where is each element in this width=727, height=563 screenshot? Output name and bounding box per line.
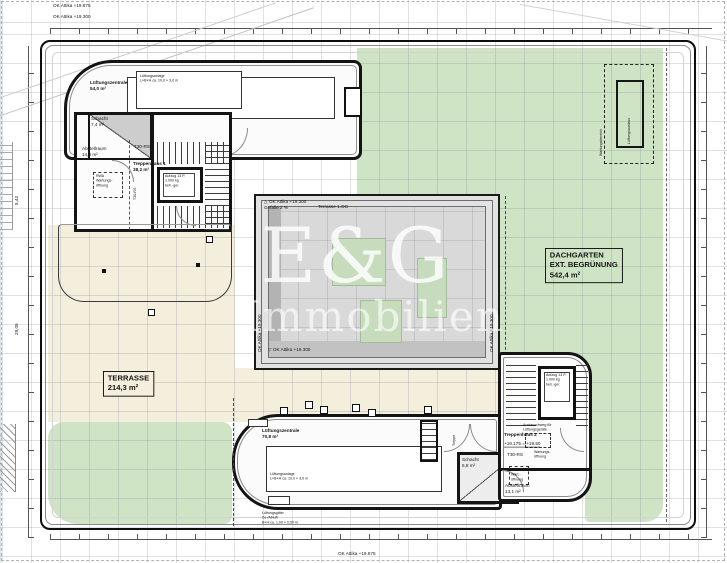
roof-drain-4 (352, 404, 360, 412)
stair1-abstell-label: Abstellraum 14,8 m² (82, 146, 107, 158)
terrasse-label: TERRASSE 214,3 m² (103, 371, 154, 396)
dimension-line-right (701, 46, 707, 538)
atrium-right-dashline (505, 196, 506, 370)
vent-ne-inner-label: Lüftungsauslass (627, 118, 632, 144)
dim-left-2: 29,05 (14, 323, 20, 335)
watermark-sub: Immobilien (244, 296, 468, 338)
terrace-dot-1 (102, 269, 106, 273)
stair2-level-label: +19.175 = +19.50 (504, 441, 541, 448)
floorplan-sheet: OK Attika +19.675 OK Attika +19.300 OK A… (0, 0, 727, 563)
south-wing-room-label: Lüftungszentrale 70,8 m² (262, 428, 299, 440)
terrace-dot-2 (196, 263, 200, 267)
stair2-flight-right (576, 364, 588, 426)
axis-dashline-west (233, 398, 234, 526)
stair2-flight-left (506, 364, 536, 426)
dimension-line-bottom (50, 534, 712, 540)
level-label-top-a: OK Attika +19.675 (53, 3, 91, 9)
terrace-square-2 (148, 309, 155, 316)
level-label-bottom: OK Attika +19.675 (338, 551, 376, 557)
stair1-service-label: RWA Wartungs- öffnung (96, 174, 112, 188)
dimension-line-left (28, 46, 34, 538)
shaft2-label: Schacht 6,8 m² (462, 457, 479, 469)
south-wing-equipment (266, 446, 442, 492)
north-wing-unit-label: Lüftungsanlage L×B×H ca. 10,0 × 3,0 m (140, 74, 178, 83)
stair2-door-label: T30-RS (507, 452, 523, 458)
neighbour-ladder (0, 142, 13, 230)
stair2-lift-label: Aufzug 13 P. 1.000 kg beh.-ger. (546, 373, 566, 387)
stair2-service-a-label: Wartungs- öffnung (534, 450, 550, 459)
treppe-vertical-label: Treppe (452, 435, 457, 446)
stair1-door-label-vertical: T30-RS (133, 188, 138, 200)
south-wing-unit-label: Lüftungsanlage L×B×H ca. 10,0 × 3,0 m (270, 472, 308, 481)
north-wing-vent-box (344, 87, 362, 117)
roof-drain-5 (368, 409, 376, 417)
vent-ne-outer-label: Wartungsbereich (599, 129, 604, 156)
roof-drain-6 (424, 406, 432, 414)
north-wing-room-label: Lüftungszentrale 54,0 m² (90, 80, 127, 92)
stair2-exchange-label: Austauschweg für Lüftungsgeräte (523, 423, 552, 432)
terrace-square-1 (206, 236, 213, 243)
dim-left-1: 5,42 (14, 196, 20, 205)
dachgarten-label: DACHGARTEN EXT. BEGRÜNUNG 542,4 m² (545, 248, 622, 283)
atrium-terrace-label: Terrasse 1.OG (318, 204, 348, 210)
neighbour-hatch (0, 424, 16, 492)
atrium-level-label: △ OK Attika +19.300 Gefälle 2 % (264, 199, 306, 211)
south-wing-louvre-panel (420, 420, 438, 462)
stair1-shaft-label: Schacht 7,4 m² (91, 116, 108, 128)
south-wing-box-bottom (268, 496, 290, 505)
stair1-lift-label: Aufzug 13 P. 1.000 kg beh.-ger. (165, 174, 185, 188)
roof-drain-2 (305, 401, 313, 409)
level-label-top-b: OK Attika +19.300 (53, 14, 91, 20)
stair2-service-b-label: RWA Wart.- öffnung (511, 468, 523, 482)
stair2-abstell-label: Abstellraum 13,1 m² (505, 483, 530, 495)
watermark-brand: E&G (248, 220, 463, 292)
atrium-level-bottom-label: ▽ OK Attika +19.300 (268, 347, 310, 353)
stair2-name-label: Treppenhaus 2 (504, 432, 537, 438)
south-wing-grille-label: Lüftungsgitter Zu-/Abluft B×H ca. 1,00 ×… (262, 511, 298, 525)
stair1-door-label: T30-RS (134, 144, 150, 150)
dimension-line-top (50, 28, 712, 34)
stair1-name-label: Treppenhaus 1 38,2 m² (133, 161, 166, 173)
green-boundary-dashed (666, 48, 667, 522)
roof-drain-3 (320, 406, 328, 414)
south-wing-box-top (248, 419, 268, 427)
roof-drain-1 (280, 407, 288, 415)
stair1-center-dashline (129, 140, 130, 230)
